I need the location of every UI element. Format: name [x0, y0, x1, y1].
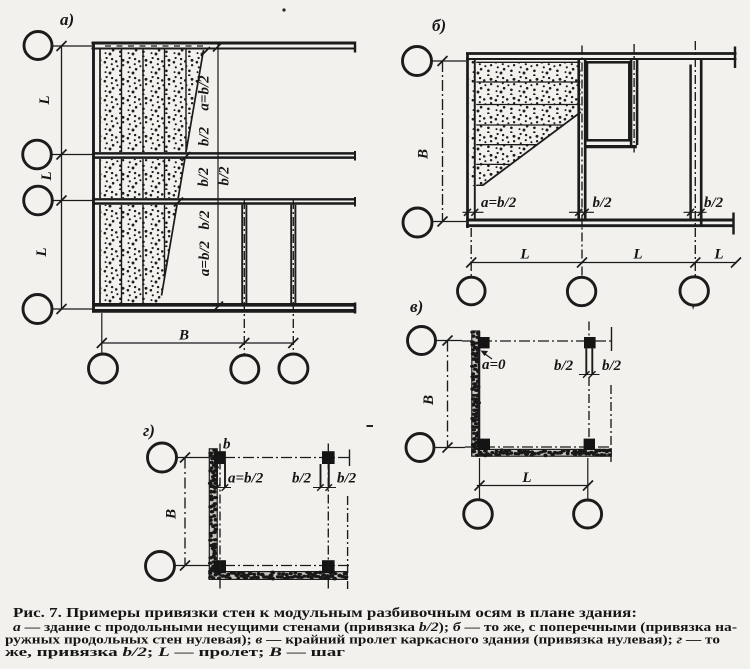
svg-text:b/2: b/2: [197, 126, 213, 146]
svg-text:В: В: [421, 395, 437, 406]
svg-text:a=b/2: a=b/2: [481, 195, 517, 211]
svg-text:b/2: b/2: [292, 471, 312, 487]
svg-text:L: L: [713, 247, 723, 263]
svg-text:L: L: [521, 470, 531, 486]
svg-text:в): в): [410, 297, 423, 316]
svg-text:b/2: b/2: [704, 195, 724, 211]
svg-text:В: В: [178, 328, 189, 344]
svg-text:L: L: [519, 247, 529, 263]
svg-text:a=b/2: a=b/2: [228, 471, 264, 487]
svg-text:a=0: a=0: [482, 357, 506, 373]
svg-text:Рис. 7. Примеры привязки стен: Рис. 7. Примеры привязки стен к модульны…: [13, 606, 637, 621]
svg-text:b: b: [223, 437, 231, 453]
svg-text:b/2: b/2: [196, 167, 212, 187]
svg-text:L: L: [632, 247, 642, 263]
svg-text:L: L: [39, 171, 55, 181]
svg-text:В: В: [416, 149, 432, 160]
svg-text:b/2: b/2: [217, 166, 233, 186]
svg-text:L: L: [37, 95, 53, 105]
svg-text:b/2: b/2: [602, 358, 622, 374]
svg-text:же, привязка b/2; L — пролет;: же, привязка b/2; L — пролет; В — шаг: [5, 645, 345, 659]
svg-text:b/2: b/2: [593, 195, 613, 211]
svg-text:г): г): [143, 421, 155, 440]
svg-text:б): б): [432, 16, 446, 35]
svg-text:b/2: b/2: [197, 210, 213, 230]
svg-text:а): а): [60, 10, 74, 29]
svg-text:a=b/2: a=b/2: [197, 240, 213, 276]
svg-text:L: L: [34, 247, 50, 257]
svg-text:b/2: b/2: [554, 358, 574, 374]
svg-text:В: В: [164, 509, 180, 520]
svg-text:a=b/2: a=b/2: [197, 75, 213, 111]
svg-text:b/2: b/2: [337, 471, 357, 487]
